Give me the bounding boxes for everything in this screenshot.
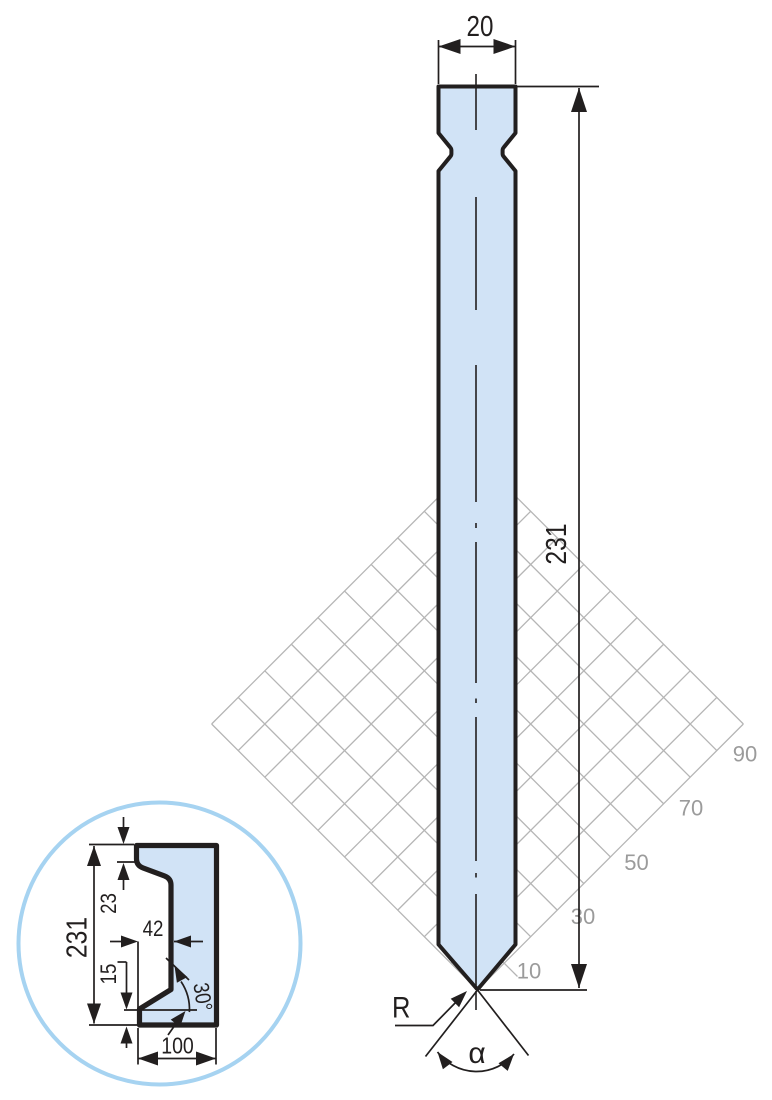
- svg-text:23: 23: [98, 893, 122, 914]
- svg-text:50: 50: [624, 850, 648, 875]
- svg-text:α: α: [468, 1037, 485, 1070]
- svg-text:10: 10: [517, 959, 541, 984]
- svg-text:231: 231: [540, 523, 572, 564]
- svg-text:20: 20: [467, 10, 494, 42]
- svg-text:100: 100: [161, 1033, 194, 1059]
- svg-text:42: 42: [143, 918, 164, 942]
- svg-text:231: 231: [61, 917, 93, 958]
- svg-text:15: 15: [98, 964, 122, 985]
- svg-text:R: R: [392, 991, 410, 1024]
- svg-text:90: 90: [733, 742, 757, 767]
- svg-text:30°: 30°: [188, 981, 216, 1013]
- svg-text:30: 30: [571, 904, 595, 929]
- svg-text:70: 70: [679, 796, 703, 821]
